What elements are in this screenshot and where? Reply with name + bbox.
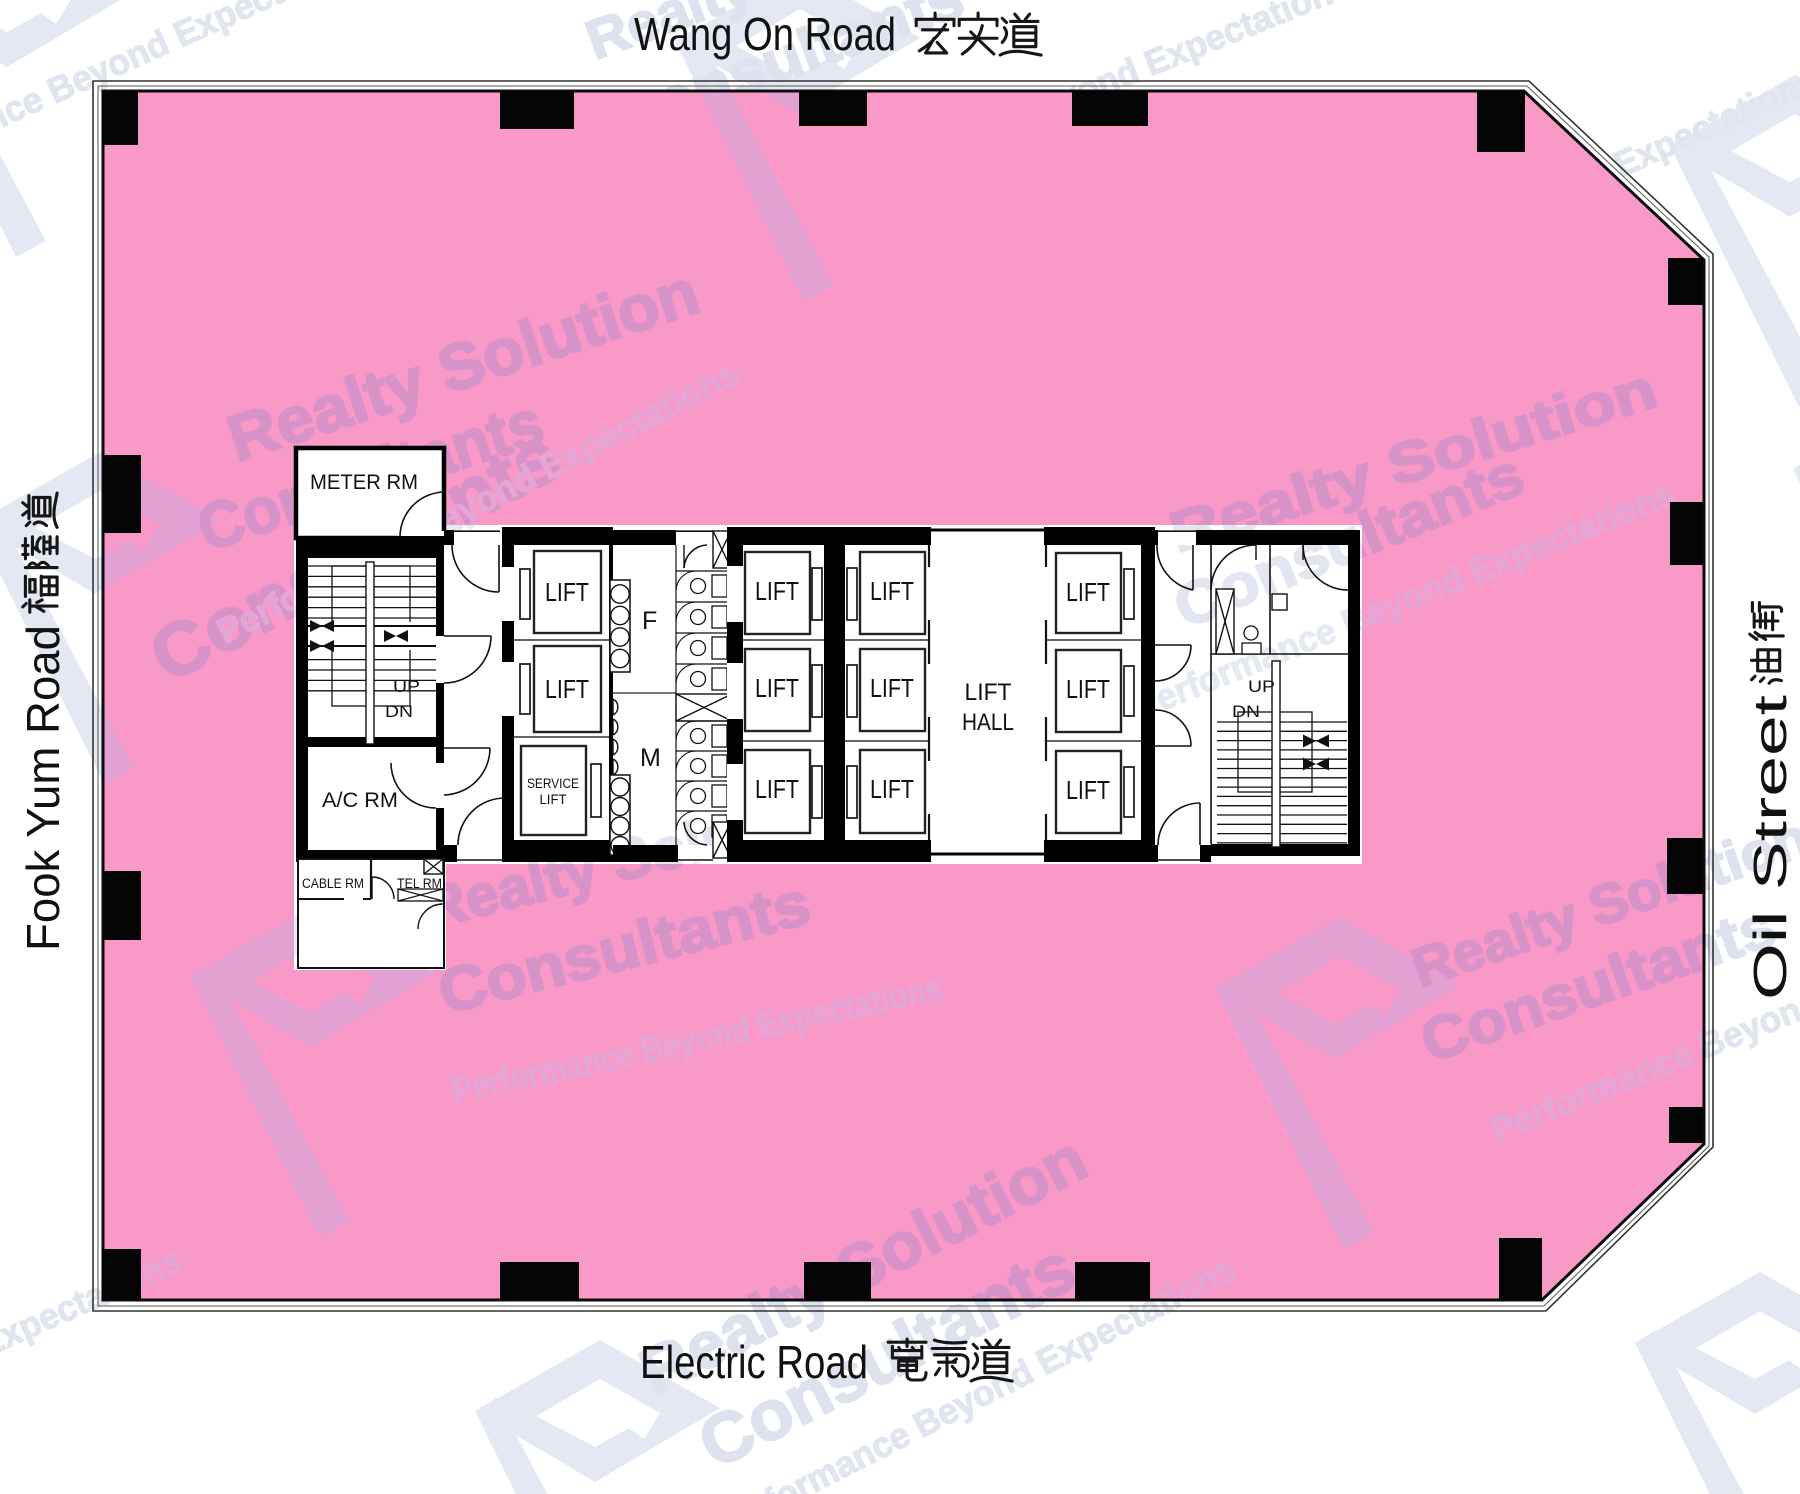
svg-text:LIFT: LIFT — [965, 679, 1012, 706]
svg-text:LIFT: LIFT — [1066, 674, 1110, 704]
svg-text:Wang On Road: Wang On Road — [634, 8, 896, 60]
svg-text:HALL: HALL — [962, 709, 1014, 736]
svg-text:Fook Yum Road: Fook Yum Road — [17, 625, 69, 951]
svg-text:UP: UP — [393, 677, 420, 696]
svg-text:LIFT: LIFT — [1066, 577, 1110, 607]
svg-text:A/C RM: A/C RM — [322, 788, 398, 812]
svg-text:LIFT: LIFT — [1066, 775, 1110, 805]
svg-text:LIFT: LIFT — [545, 674, 589, 704]
svg-text:LIFT: LIFT — [755, 576, 799, 606]
svg-text:LIFT: LIFT — [545, 577, 589, 607]
svg-text:LIFT: LIFT — [755, 774, 799, 804]
svg-text:M: M — [640, 744, 661, 772]
svg-text:METER RM: METER RM — [310, 471, 418, 494]
svg-text:Electric Road: Electric Road — [640, 1336, 868, 1388]
svg-text:DN: DN — [385, 702, 413, 721]
svg-text:Oil Street: Oil Street — [1744, 695, 1796, 1000]
svg-text:CABLE RM: CABLE RM — [302, 876, 364, 891]
svg-text:LIFT: LIFT — [540, 792, 567, 807]
svg-text:LIFT: LIFT — [870, 673, 914, 703]
svg-text:F: F — [642, 607, 657, 635]
svg-text:LIFT: LIFT — [870, 774, 914, 804]
svg-text:UP: UP — [1248, 677, 1275, 696]
svg-text:SERVICE: SERVICE — [527, 776, 579, 791]
svg-text:LIFT: LIFT — [755, 673, 799, 703]
svg-text:LIFT: LIFT — [870, 576, 914, 606]
svg-text:DN: DN — [1232, 702, 1260, 721]
